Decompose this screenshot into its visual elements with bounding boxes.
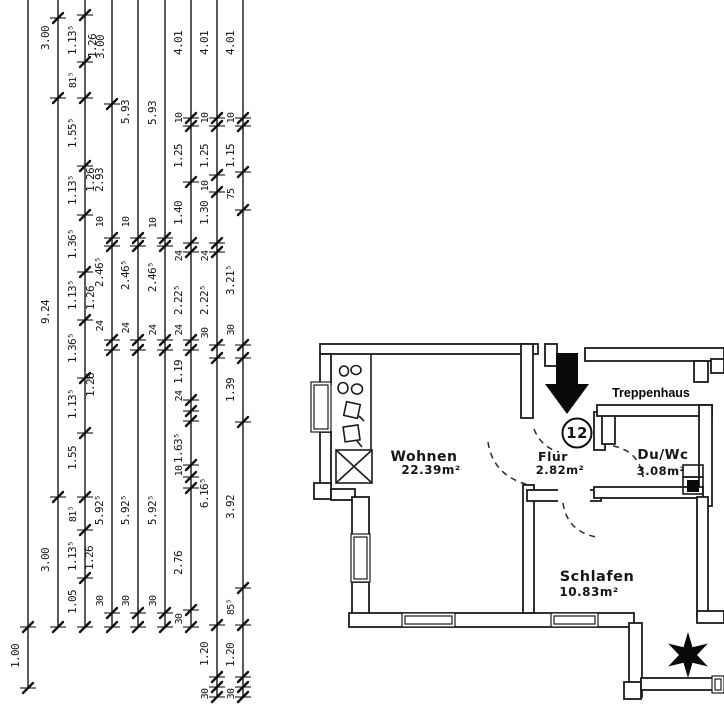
sink-icon: [343, 425, 360, 442]
window: [354, 537, 367, 579]
wall-segment: [320, 354, 331, 384]
wall-segment: [697, 611, 724, 623]
burner-icon: [338, 383, 348, 394]
door-arc-schlafen: [563, 503, 596, 537]
unit-number: 12: [566, 424, 588, 442]
windows: [311, 382, 724, 693]
shaft-box: [336, 450, 372, 483]
door-swings: [488, 429, 643, 537]
window: [554, 616, 595, 624]
room-area-flur: 2.82m²: [536, 463, 584, 477]
room-label-duwc: Du/Wc: [637, 447, 688, 463]
wall-segment: [694, 361, 708, 382]
wall-segment: [320, 432, 331, 485]
room-label-flur: Flur: [538, 449, 568, 464]
window: [715, 679, 721, 690]
wall-segment: [697, 497, 708, 617]
wall-segment: [585, 348, 724, 361]
room-area-wohnen: 22.39m²: [401, 463, 460, 477]
sink-icon: [344, 402, 361, 419]
floor-plan: 12 Wohnen 22.39m² Flur 2.82m² Du/Wc 3.08…: [0, 0, 724, 720]
arrow-shaft: [556, 353, 578, 384]
wall-segment: [314, 483, 331, 499]
wall-segment: [523, 485, 534, 613]
wall-segment: [352, 497, 369, 535]
staircase-label: Treppenhaus: [612, 386, 690, 400]
wall-segment: [641, 678, 713, 690]
kitchen-fixtures: [336, 354, 372, 483]
wall-segment: [624, 682, 641, 699]
window: [314, 385, 328, 429]
window: [405, 616, 452, 624]
door-opening: [558, 488, 590, 503]
wall-segment: [352, 582, 369, 615]
wall-segment: [594, 487, 703, 498]
room-label-schlafen: Schlafen: [560, 569, 635, 585]
wall-segment: [320, 344, 538, 354]
room-area-schlafen: 10.83m²: [559, 585, 618, 599]
unit-number-badge: 12: [563, 419, 592, 448]
plant-symbol: [668, 632, 708, 678]
wall-segment: [521, 344, 533, 418]
sink-icon: [359, 416, 364, 421]
wall-segment: [545, 344, 557, 366]
burner-icon: [352, 384, 363, 394]
arrow-head: [545, 384, 589, 414]
door-arc-wohnen: [488, 442, 529, 485]
architectural-drawing: 1.003.009.243.001.13⁵81⁵1.55⁵1.13⁵1.36⁵1…: [0, 0, 724, 720]
wall-segment: [711, 359, 724, 373]
sink-icon: [357, 441, 362, 447]
room-area-duwc: 3.08m²: [637, 464, 685, 478]
burner-icon: [351, 366, 361, 375]
burner-icon: [340, 366, 349, 376]
washbasin-icon: [687, 480, 699, 492]
wall-segment: [597, 405, 712, 416]
